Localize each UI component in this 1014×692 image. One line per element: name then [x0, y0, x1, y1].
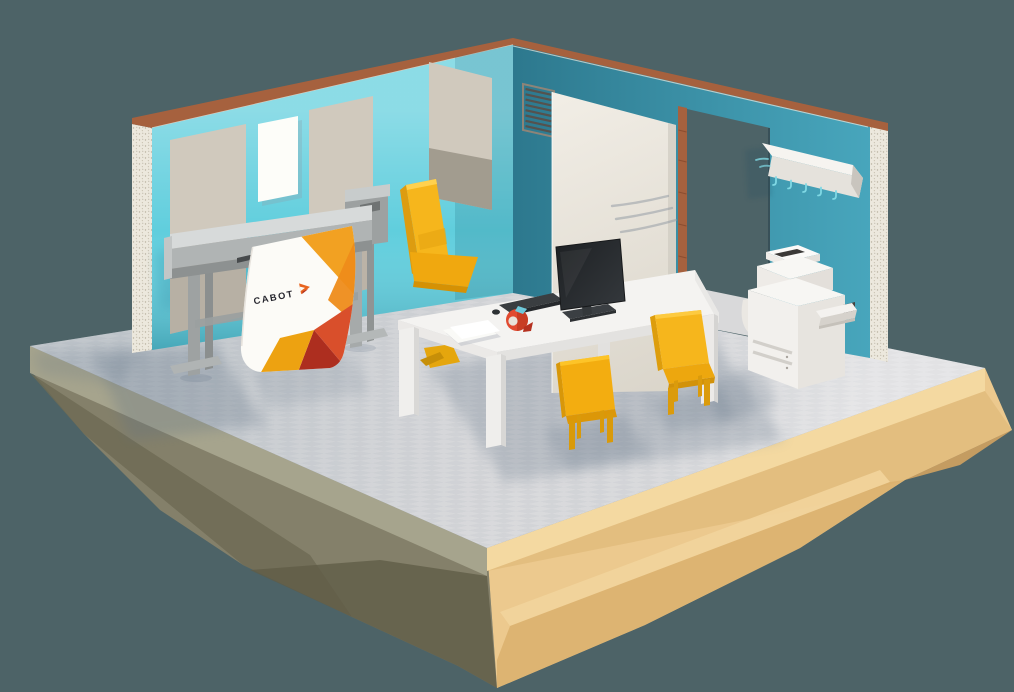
guest-chair-back: [655, 310, 709, 369]
poster-sheet: [258, 116, 302, 206]
mouse: [492, 309, 500, 314]
right-wall-outer-edge: [870, 125, 888, 362]
illustration-stage: CABOT: [0, 0, 1014, 692]
isometric-office-illustration: CABOT: [0, 0, 1014, 692]
printer-body: [748, 278, 845, 389]
monitor: [556, 239, 625, 322]
left-wall-outer-edge: [132, 124, 152, 353]
